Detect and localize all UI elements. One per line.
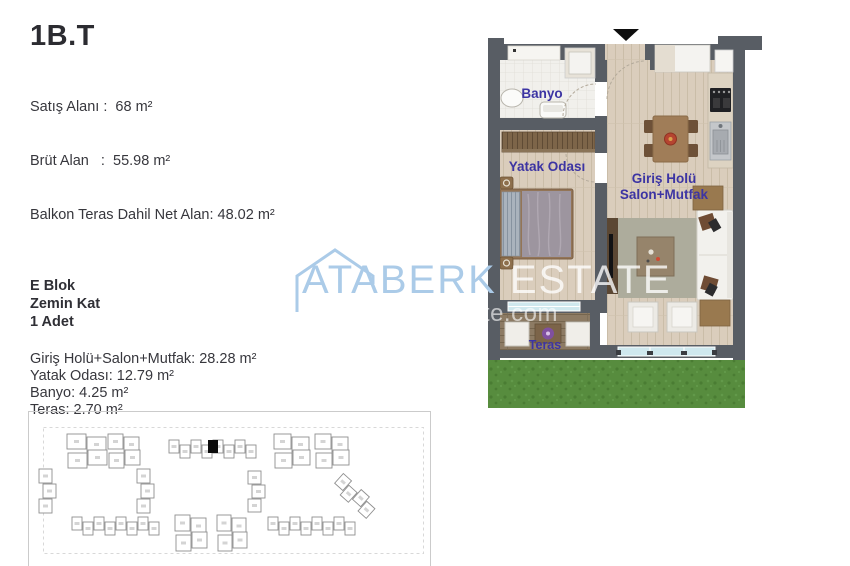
table-decor-2 xyxy=(656,257,660,261)
side-table-bottom xyxy=(700,300,730,326)
building-cluster xyxy=(274,434,310,468)
centerpiece-dot xyxy=(669,137,673,141)
site-plan-buildings xyxy=(39,434,378,551)
washer xyxy=(569,52,591,74)
bed-pillows xyxy=(502,192,520,256)
dining-chair-3 xyxy=(687,120,698,133)
block-info: E Blok Zemin Kat 1 Adet xyxy=(30,277,275,331)
spotlight xyxy=(513,49,516,52)
building-cluster xyxy=(108,434,140,468)
building-cluster xyxy=(268,517,355,535)
burner-2 xyxy=(723,98,730,108)
area-banyo: Banyo: 4.25 m² xyxy=(30,385,275,402)
building-cluster xyxy=(331,474,378,519)
wardrobe-front xyxy=(502,149,595,152)
sill-tick-4 xyxy=(712,350,717,355)
page: 1B.T Satış Alanı : 68 m² Brüt Alan : 55.… xyxy=(0,0,850,566)
armchair-2 xyxy=(667,302,697,332)
house-icon xyxy=(294,246,378,318)
salon-window xyxy=(618,347,715,356)
dining-chair-4 xyxy=(687,144,698,157)
block-name: E Blok xyxy=(30,277,275,295)
sofa-back xyxy=(727,212,733,298)
building-cluster xyxy=(67,434,107,468)
unit-count: 1 Adet xyxy=(30,313,275,331)
teras-flower-center xyxy=(546,332,550,336)
building-cluster xyxy=(137,469,154,513)
salon-label-line2: Salon+Mutfak xyxy=(620,187,709,202)
salon-label-line1: Giriş Holü xyxy=(632,171,697,186)
stove-knob-4 xyxy=(728,91,730,93)
banyo-niche xyxy=(508,46,560,60)
building-cluster xyxy=(315,434,349,468)
teras-chair-2 xyxy=(566,322,590,346)
stove-knob-2 xyxy=(718,91,720,93)
entry-closet-left xyxy=(655,45,675,72)
floor-name: Zemin Kat xyxy=(30,295,275,313)
washbasin xyxy=(501,89,523,107)
corner-niche xyxy=(715,50,733,72)
unit-location-marker xyxy=(208,440,218,453)
building-cluster xyxy=(217,515,247,551)
spec-net-alan: Balkon Teras Dahil Net Alan: 48.02 m² xyxy=(30,206,275,224)
building-cluster xyxy=(175,515,207,551)
watermark-brand: ATABERK xyxy=(302,258,497,302)
building-cluster xyxy=(72,517,159,535)
stove-knob-3 xyxy=(723,91,725,93)
garden-grass xyxy=(488,360,745,408)
sill-tick-2 xyxy=(647,351,653,355)
room-areas: Giriş Holü+Salon+Mutfak: 28.28 m² Yatak … xyxy=(30,351,275,419)
nightstand-bottom xyxy=(500,257,513,269)
spec-satis-alani: Satış Alanı : 68 m² xyxy=(30,98,275,116)
entry-arrow-icon xyxy=(613,29,639,41)
faucet xyxy=(719,124,723,128)
armchair-1 xyxy=(628,302,658,332)
stove-knob-1 xyxy=(713,91,715,93)
unit-info-panel: 1B.T Satış Alanı : 68 m² Brüt Alan : 55.… xyxy=(30,20,275,419)
toilet-seat xyxy=(543,105,563,112)
unit-specs: Satış Alanı : 68 m² Brüt Alan : 55.98 m²… xyxy=(30,62,275,260)
area-yatak: Yatak Odası: 12.79 m² xyxy=(30,368,275,385)
sill-tick-3 xyxy=(681,351,687,355)
building-cluster xyxy=(248,471,265,512)
table-decor-3 xyxy=(647,260,650,263)
table-decor-1 xyxy=(648,249,653,254)
teras-chair-1 xyxy=(505,322,529,346)
banyo-label: Banyo xyxy=(521,86,562,101)
entry-floor xyxy=(605,44,645,60)
tv xyxy=(609,234,613,278)
burner-1 xyxy=(713,98,720,108)
coffee-table xyxy=(637,237,674,276)
kitchen xyxy=(708,73,733,168)
teras-label: Teras xyxy=(529,338,561,352)
area-salon: Giriş Holü+Salon+Mutfak: 28.28 m² xyxy=(30,351,275,368)
building-cluster xyxy=(39,469,56,513)
site-plan xyxy=(28,411,431,566)
sill-tick-1 xyxy=(616,350,621,355)
nightstand-top xyxy=(500,177,513,189)
spec-brut-alan: Brüt Alan : 55.98 m² xyxy=(30,152,275,170)
unit-title: 1B.T xyxy=(30,20,275,53)
floor-plan: Banyo Yatak Odası Giriş Holü Salon+Mutfa… xyxy=(488,28,762,408)
yatak-odasi-label: Yatak Odası xyxy=(509,159,586,174)
